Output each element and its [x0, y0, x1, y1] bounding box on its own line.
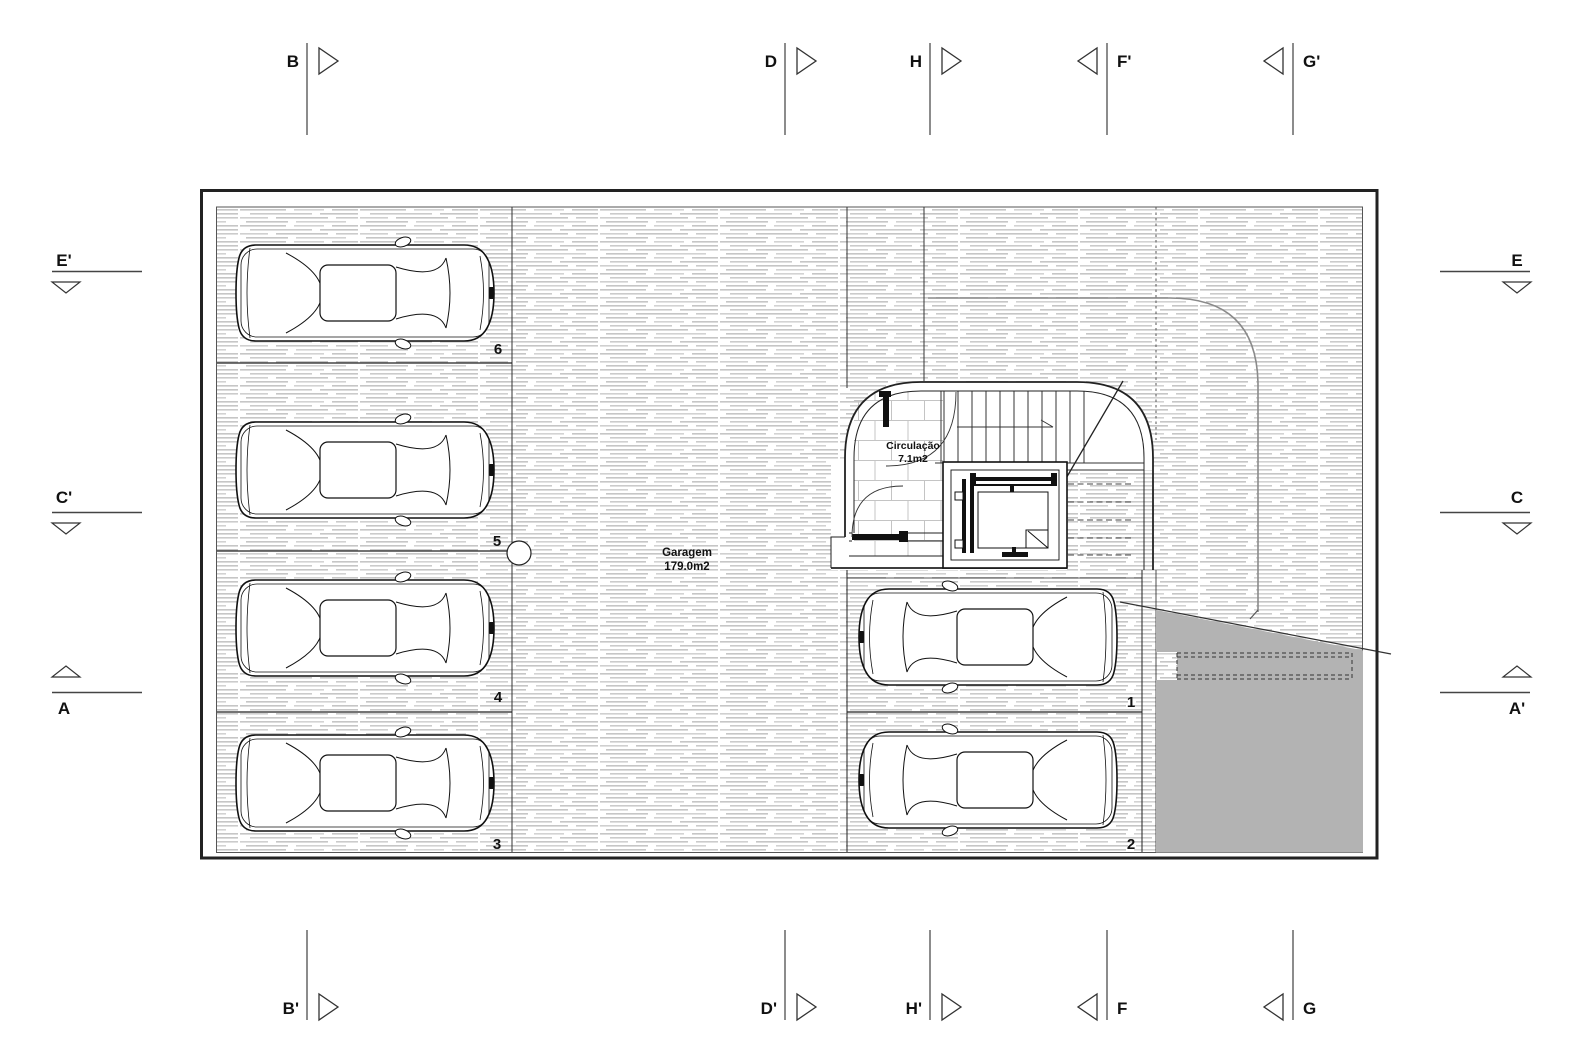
section-arrow-icon [319, 994, 338, 1020]
section-marker-left-a: A [52, 666, 142, 718]
section-marker-top-g-prime: G' [1264, 43, 1320, 135]
elevator-door-rail [976, 477, 1051, 481]
section-marker-bottom-b-prime: B' [283, 930, 338, 1020]
parking-space-number-4: 4 [494, 689, 503, 706]
section-arrow-icon [1264, 48, 1283, 74]
section-marker-left-c-prime: C' [52, 488, 142, 534]
section-label: H' [906, 999, 922, 1018]
section-marker-right-e: E [1440, 251, 1531, 293]
section-arrow-icon [1264, 994, 1283, 1020]
car-space-6 [236, 235, 494, 351]
room-area-garagem: 179.0m2 [664, 561, 709, 573]
car-space-1 [859, 579, 1117, 695]
section-arrow-icon [797, 994, 816, 1020]
section-label: B [287, 52, 299, 71]
car-space-2 [859, 722, 1117, 838]
section-marker-right-a-prime: A' [1440, 666, 1531, 718]
room-label-circulacao: Circulação [886, 440, 940, 452]
section-arrow-icon [797, 48, 816, 74]
column [507, 541, 531, 565]
car-space-5 [236, 412, 494, 528]
section-label: B' [283, 999, 299, 1018]
section-marker-top-h: H [910, 43, 961, 135]
section-arrow-icon [1503, 523, 1531, 534]
section-marker-top-b: B [287, 43, 338, 135]
section-arrow-icon [319, 48, 338, 74]
section-label: C [1511, 488, 1523, 507]
garage-floor-plan-drawing: B D H F' G' B' D' H' F [0, 0, 1572, 1058]
section-arrow-icon [52, 282, 80, 293]
parking-space-number-3: 3 [493, 836, 501, 853]
section-marker-right-c: C [1440, 488, 1531, 534]
section-arrow-icon [52, 523, 80, 534]
room-label-garagem: Garagem [662, 547, 712, 559]
parking-space-number-5: 5 [493, 533, 501, 550]
section-arrow-icon [1503, 666, 1531, 677]
room-area-circulacao: 7.1m2 [898, 453, 928, 465]
parking-space-number-1: 1 [1127, 694, 1135, 711]
section-label: C' [56, 488, 72, 507]
floor-plan-page: B D H F' G' B' D' H' F [0, 0, 1572, 1058]
section-label: F [1117, 999, 1127, 1018]
car-space-3 [236, 725, 494, 841]
section-label: A' [1509, 699, 1525, 718]
section-marker-top-f-prime: F' [1078, 43, 1131, 135]
car-space-4 [236, 570, 494, 686]
section-arrow-icon [942, 48, 961, 74]
section-arrow-icon [52, 666, 80, 677]
section-label: F' [1117, 52, 1131, 71]
section-arrow-icon [1078, 48, 1097, 74]
section-marker-bottom-f: F [1078, 930, 1127, 1020]
circulation-tiles [854, 391, 943, 556]
section-label: D' [761, 999, 777, 1018]
section-marker-bottom-h-prime: H' [906, 930, 961, 1020]
section-label: H [910, 52, 922, 71]
section-label: G' [1303, 52, 1320, 71]
section-arrow-icon [1503, 282, 1531, 293]
section-marker-top-d: D [765, 43, 816, 135]
section-arrow-icon [1078, 994, 1097, 1020]
section-marker-bottom-g: G [1264, 930, 1316, 1020]
section-label: G [1303, 999, 1316, 1018]
section-label: D [765, 52, 777, 71]
section-marker-left-e-prime: E' [52, 251, 142, 293]
section-label: E [1511, 251, 1522, 270]
section-label: A [58, 699, 70, 718]
parking-space-number-6: 6 [494, 341, 502, 358]
section-label: E' [56, 251, 71, 270]
parking-space-number-2: 2 [1127, 836, 1135, 853]
section-arrow-icon [942, 994, 961, 1020]
elevator [943, 462, 1067, 568]
section-marker-bottom-d-prime: D' [761, 930, 816, 1020]
